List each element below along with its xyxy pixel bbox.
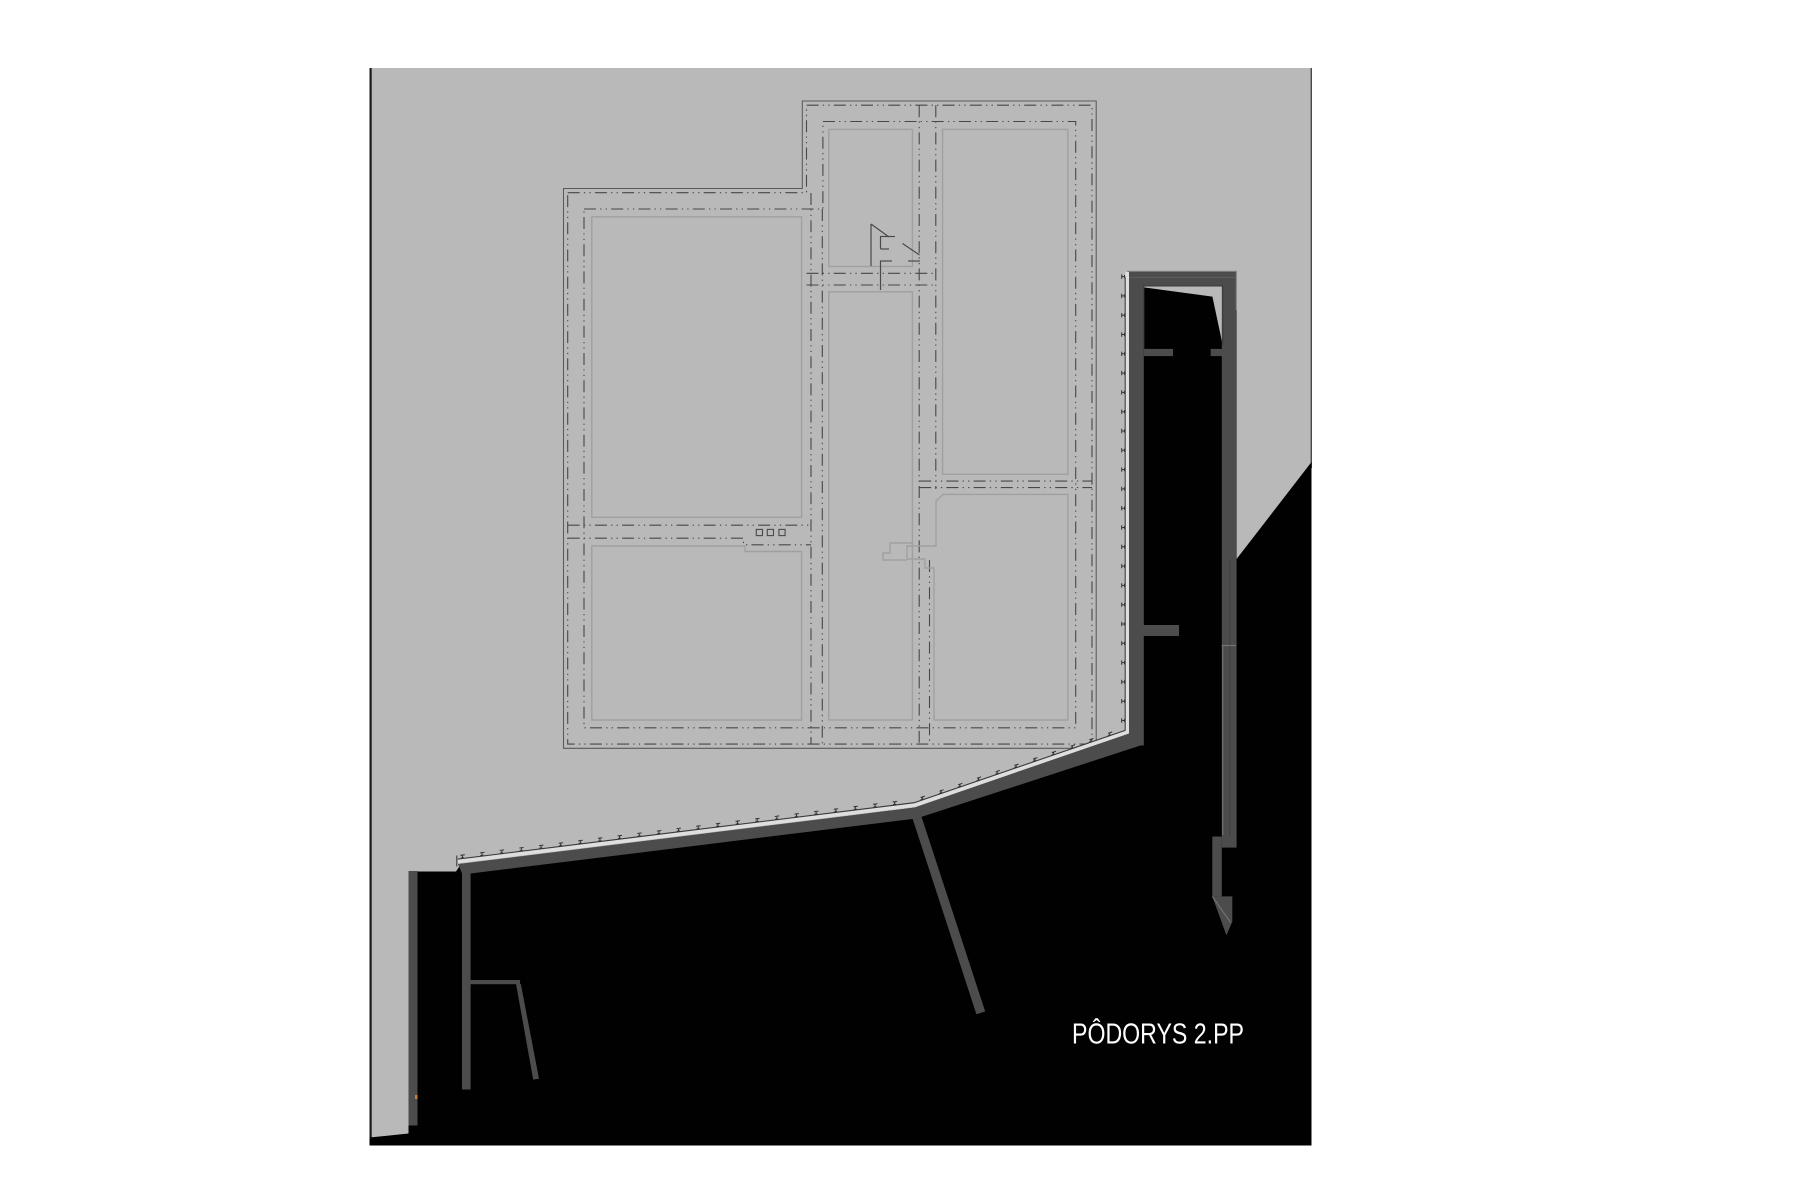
svg-text:PÔDORYS 2.PP: PÔDORYS 2.PP [1072, 1019, 1244, 1051]
